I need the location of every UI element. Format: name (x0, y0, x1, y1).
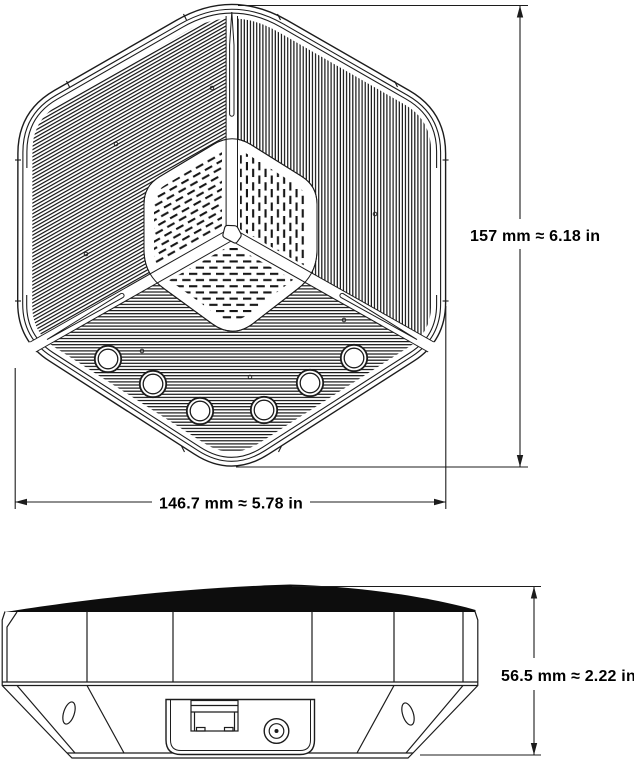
svg-text:146.7 mm ≈ 5.78 in: 146.7 mm ≈ 5.78 in (159, 496, 303, 513)
svg-text:56.5 mm ≈ 2.22 in: 56.5 mm ≈ 2.22 in (501, 668, 634, 685)
svg-text:157 mm ≈ 6.18 in: 157 mm ≈ 6.18 in (470, 228, 600, 245)
